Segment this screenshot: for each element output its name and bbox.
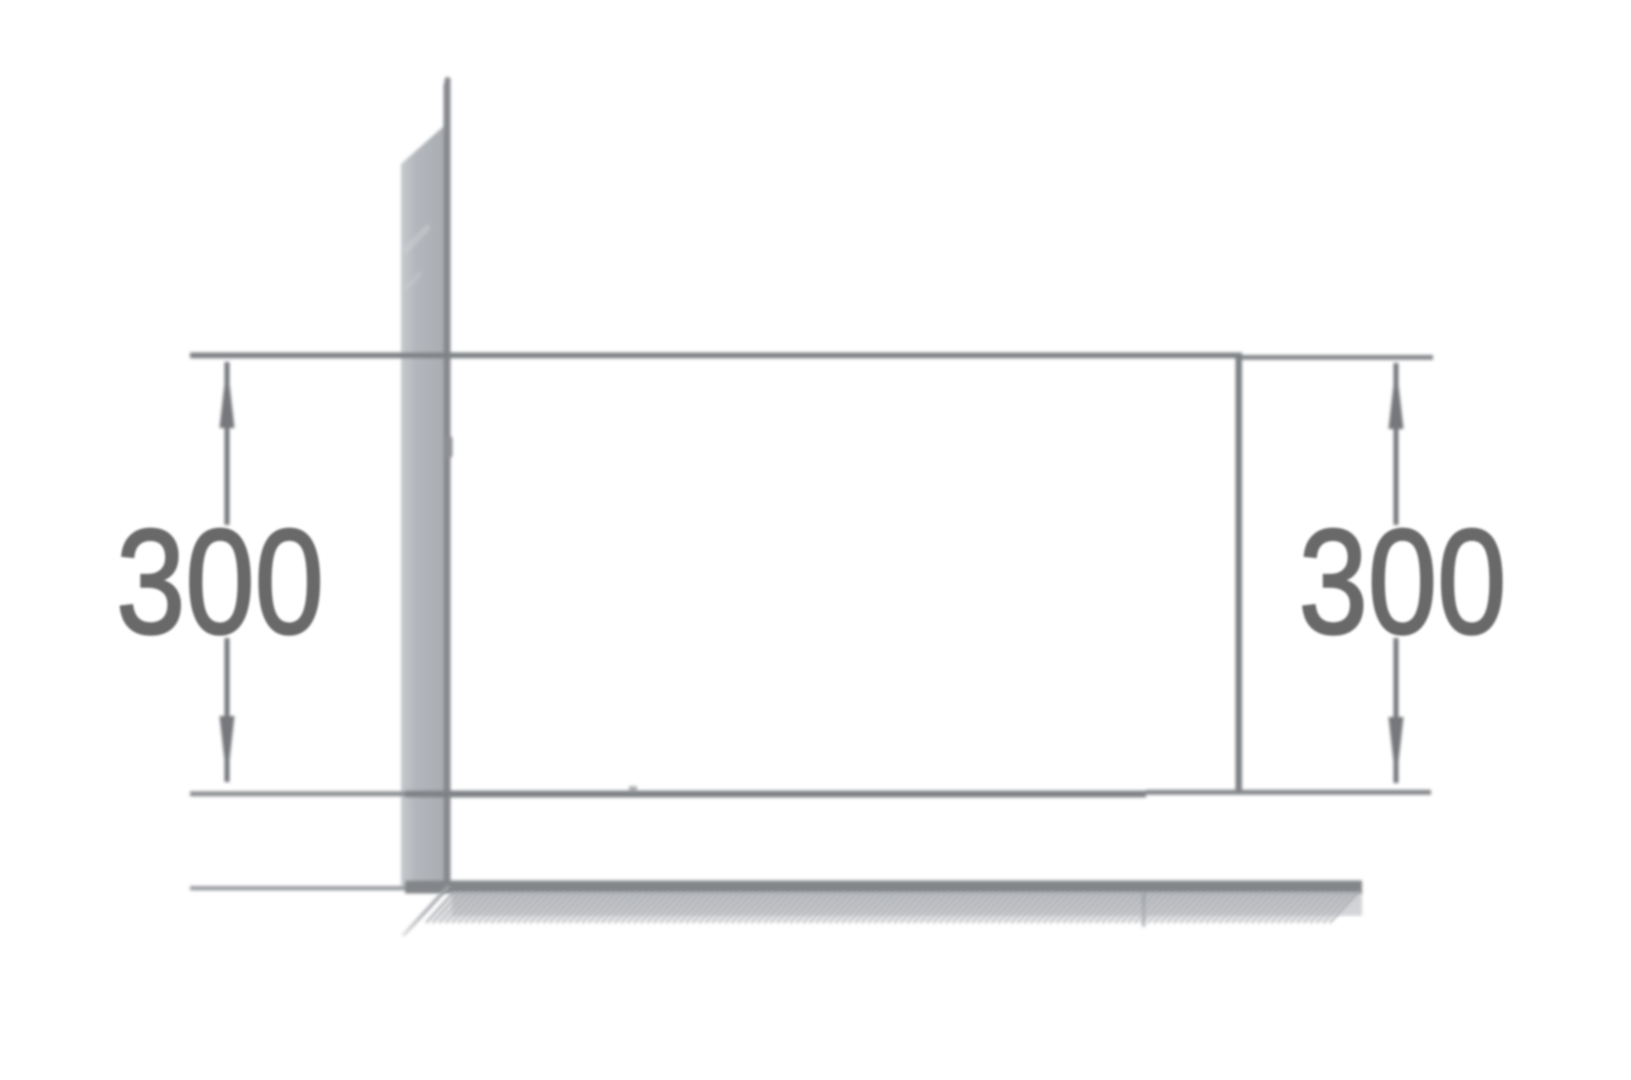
svg-text:300: 300 [1299, 500, 1507, 666]
svg-text:300: 300 [116, 500, 324, 666]
